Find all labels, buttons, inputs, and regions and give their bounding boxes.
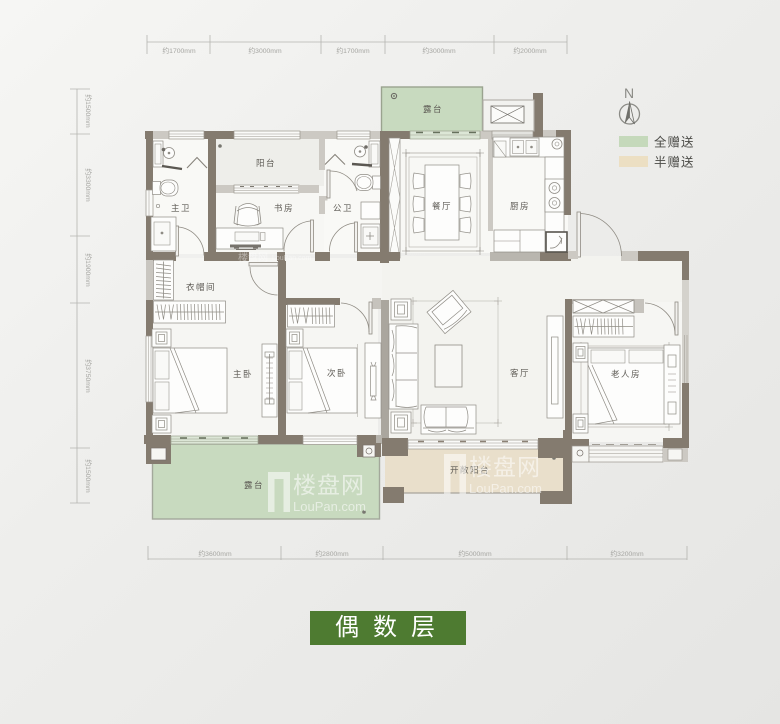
svg-text:约1500mm: 约1500mm: [84, 459, 93, 493]
svg-text:书房: 书房: [274, 203, 294, 213]
svg-text:阳台: 阳台: [256, 158, 276, 168]
svg-text:约2000mm: 约2000mm: [513, 46, 547, 55]
svg-text:约3000mm: 约3000mm: [422, 46, 456, 55]
svg-text:约3750mm: 约3750mm: [84, 359, 93, 393]
svg-text:约1900mm: 约1900mm: [84, 253, 93, 287]
svg-text:约5000mm: 约5000mm: [458, 549, 492, 558]
svg-text:楼盘网: 楼盘网: [293, 472, 365, 498]
svg-text:公卫: 公卫: [333, 203, 353, 213]
svg-text:主卫: 主卫: [171, 203, 191, 213]
svg-text:露台: 露台: [244, 480, 264, 490]
svg-text:偶数层: 偶数层: [335, 614, 449, 641]
svg-text:客厅: 客厅: [510, 368, 530, 378]
svg-text:主卧: 主卧: [233, 369, 253, 379]
svg-text:LouPan.com: LouPan.com: [469, 481, 542, 496]
svg-text:N: N: [624, 85, 634, 101]
svg-text:厨房: 厨房: [510, 201, 530, 211]
svg-text:露台: 露台: [423, 104, 443, 114]
svg-text:约3600mm: 约3600mm: [198, 549, 232, 558]
svg-text:全赠送: 全赠送: [654, 135, 695, 150]
svg-text:LouPan.com: LouPan.com: [272, 255, 311, 262]
svg-text:衣帽间: 衣帽间: [186, 282, 216, 292]
svg-text:楼盘网: 楼盘网: [469, 454, 541, 480]
svg-text:老人房: 老人房: [611, 369, 641, 379]
svg-text:半赠送: 半赠送: [654, 155, 695, 170]
svg-text:LouPan.com: LouPan.com: [293, 499, 366, 514]
svg-text:餐厅: 餐厅: [432, 201, 452, 211]
svg-text:约3000mm: 约3000mm: [248, 46, 282, 55]
svg-text:楼盘网: 楼盘网: [238, 251, 268, 264]
svg-text:约3300mm: 约3300mm: [84, 168, 93, 202]
svg-text:约1500mm: 约1500mm: [84, 94, 93, 128]
svg-text:约3200mm: 约3200mm: [610, 549, 644, 558]
svg-text:次卧: 次卧: [327, 368, 347, 378]
svg-text:约2800mm: 约2800mm: [315, 549, 349, 558]
svg-text:约1700mm: 约1700mm: [162, 46, 196, 55]
svg-text:约1700mm: 约1700mm: [336, 46, 370, 55]
